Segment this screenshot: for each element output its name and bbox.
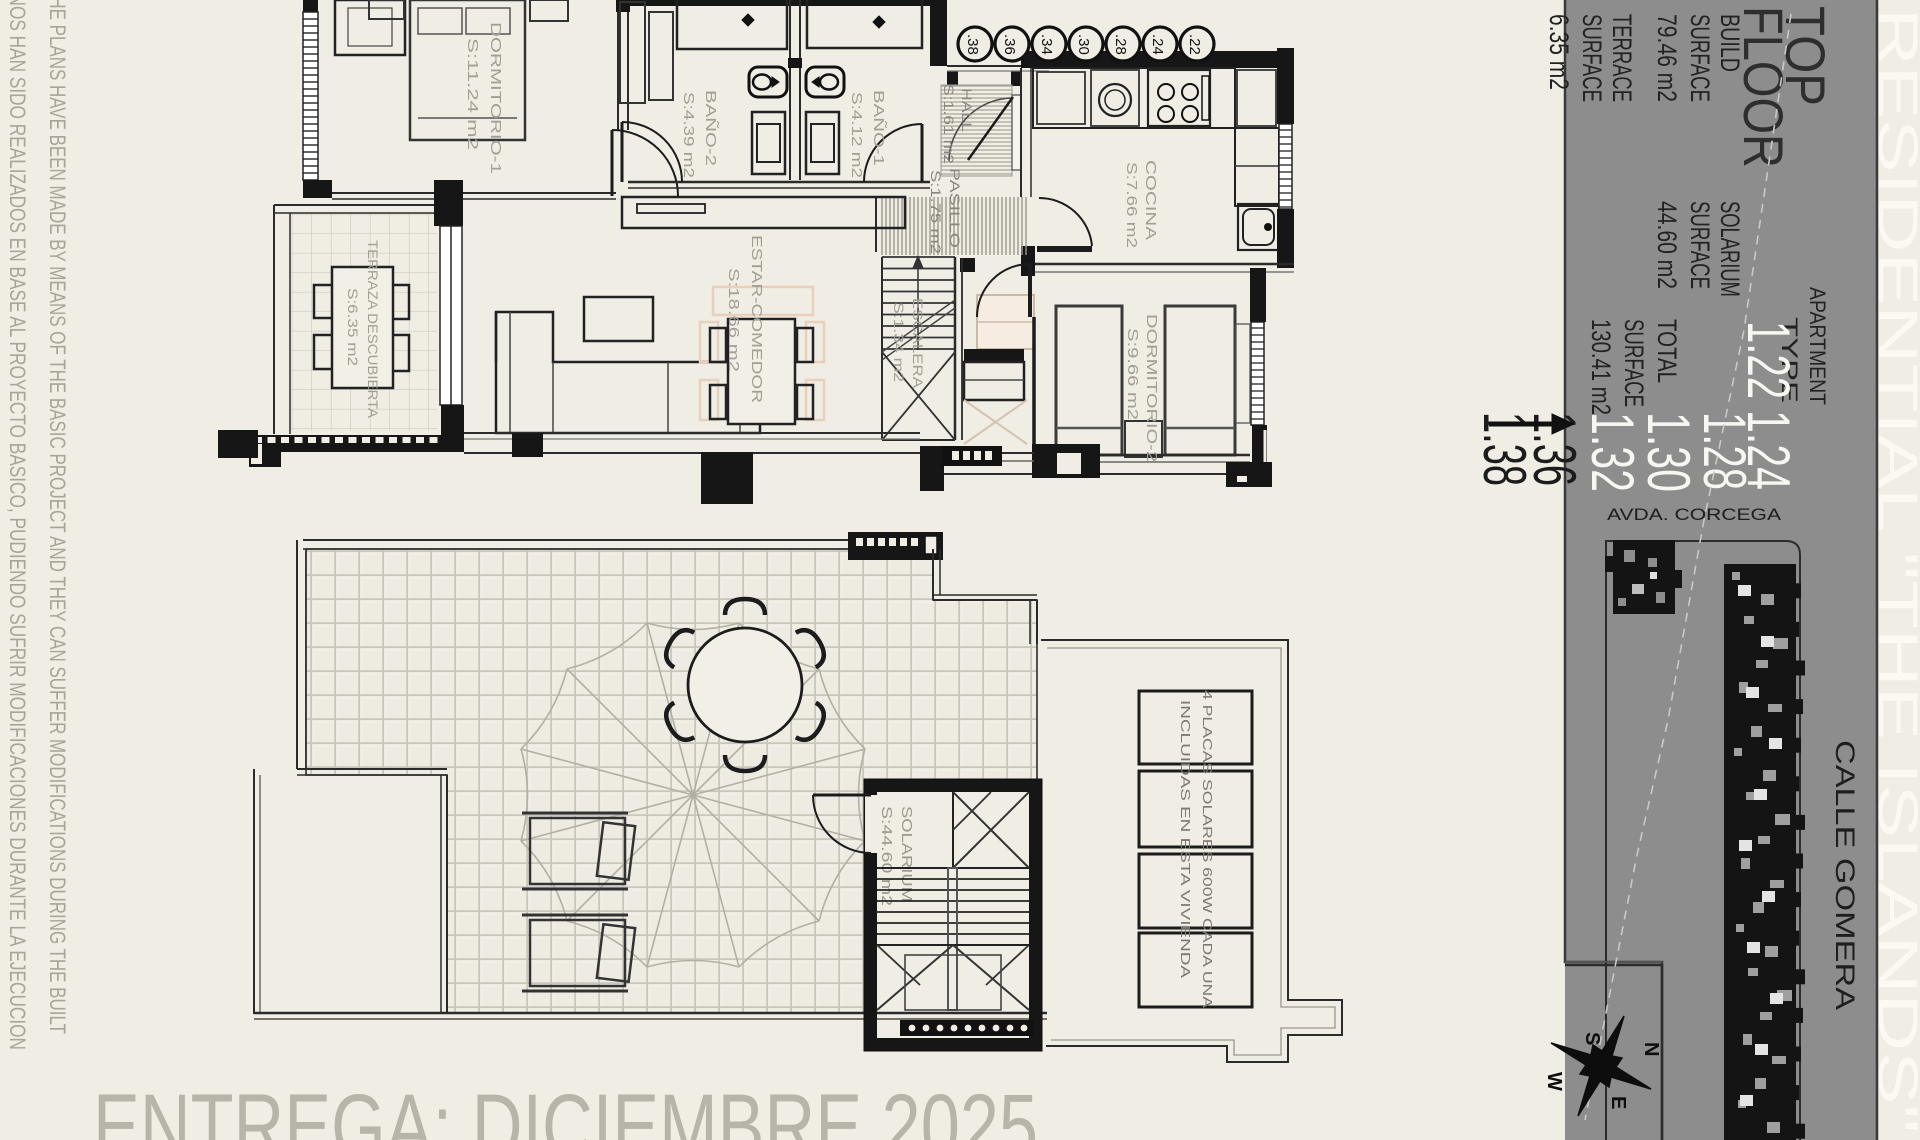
svg-text:.28: .28 [1112,34,1129,55]
svg-text:DORMITORIO-1: DORMITORIO-1 [487,22,504,174]
svg-text:SURFACE: SURFACE [1577,14,1607,102]
svg-text:1.32: 1.32 [1579,412,1646,492]
svg-text:79.46 m2: 79.46 m2 [1652,14,1682,102]
svg-text:SURFACE: SURFACE [1685,14,1715,102]
svg-text:SOLARIUM: SOLARIUM [1715,201,1745,297]
svg-text:S:11.24 m2: S:11.24 m2 [464,38,481,150]
svg-text:DORMITORIO-2: DORMITORIO-2 [1143,314,1160,462]
svg-text:S:18.66 m2: S:18.66 m2 [725,268,742,372]
svg-text:.30: .30 [1075,34,1092,55]
svg-text:.22: .22 [1186,34,1203,55]
svg-text:BAÑO-1: BAÑO-1 [870,90,887,166]
svg-text:.34: .34 [1038,34,1055,55]
svg-text:INCLUIDAS EN ESTA VIVIENDA: INCLUIDAS EN ESTA VIVIENDA [1178,700,1193,978]
svg-text:APARTMENT: APARTMENT [1805,287,1830,405]
svg-text:PASILLO: PASILLO [947,168,963,248]
svg-text:HALL: HALL [959,88,975,132]
svg-text:CALLE GOMERA: CALLE GOMERA [1830,740,1860,1010]
svg-text:E: E [1607,1096,1629,1109]
svg-text:S:4.12 m2: S:4.12 m2 [848,92,865,178]
svg-text:.36: .36 [1001,34,1018,55]
svg-text:S:1.75 m2: S:1.75 m2 [928,170,944,254]
svg-text:COCINA: COCINA [1142,160,1159,240]
svg-text:ESCALERA: ESCALERA [910,298,926,389]
svg-text:TERRAZA DESCUBIERTA: TERRAZA DESCUBIERTA [365,240,381,419]
svg-text:W: W [1543,1072,1565,1091]
svg-text:SOLARIUM: SOLARIUM [898,806,915,902]
svg-text:BUILD: BUILD [1715,14,1745,72]
svg-text:.38: .38 [964,34,981,55]
svg-text:S:7.66 m2: S:7.66 m2 [1123,162,1140,248]
svg-text:1.22: 1.22 [1735,321,1802,399]
svg-text:.24: .24 [1149,34,1166,55]
svg-text:S:44.60 m2: S:44.60 m2 [878,806,895,906]
svg-text:THE PLANS HAVE BEEN MADE BY ME: THE PLANS HAVE BEEN MADE BY MEANS OF THE… [45,0,70,1034]
svg-text:ANOS HAN SIDO REALIZADOS EN BA: ANOS HAN SIDO REALIZADOS EN BASE AL PROY… [5,0,30,1050]
svg-text:TERRACE: TERRACE [1607,14,1637,102]
svg-text:N: N [1640,1042,1662,1056]
svg-text:S:4.39 m2: S:4.39 m2 [680,92,697,178]
svg-text:TOTAL: TOTAL [1652,319,1682,383]
svg-text:ESTAR-COMEDOR: ESTAR-COMEDOR [748,235,765,403]
svg-text:S:9.66 m2: S:9.66 m2 [1124,328,1141,420]
svg-text:130.41 m2: 130.41 m2 [1586,319,1616,415]
svg-text:BAÑO-2: BAÑO-2 [702,90,719,166]
svg-text:SURFACE: SURFACE [1685,201,1715,289]
svg-text:6.35 m2: 6.35 m2 [1544,14,1574,90]
svg-text:SURFACE: SURFACE [1619,319,1649,407]
svg-text:AVDA. CORCEGA: AVDA. CORCEGA [1607,505,1782,524]
svg-text:44.60 m2: 44.60 m2 [1652,201,1682,289]
svg-text:S:6.35 m2: S:6.35 m2 [345,288,361,366]
svg-text:S:1.61 m2: S:1.61 m2 [941,84,957,164]
svg-text:S:1.34 m2: S:1.34 m2 [891,302,907,382]
svg-text:4 PLACAS SOLARES 600W CADA UNA: 4 PLACAS SOLARES 600W CADA UNA [1200,690,1215,1008]
svg-text:ENTREGA: DICIEMBRE 2025: ENTREGA: DICIEMBRE 2025 [93,1076,1038,1140]
svg-text:S: S [1581,1032,1603,1045]
svg-text:RESIDENTIAL "THE ISLANDS": RESIDENTIAL "THE ISLANDS" [1867,8,1920,1133]
